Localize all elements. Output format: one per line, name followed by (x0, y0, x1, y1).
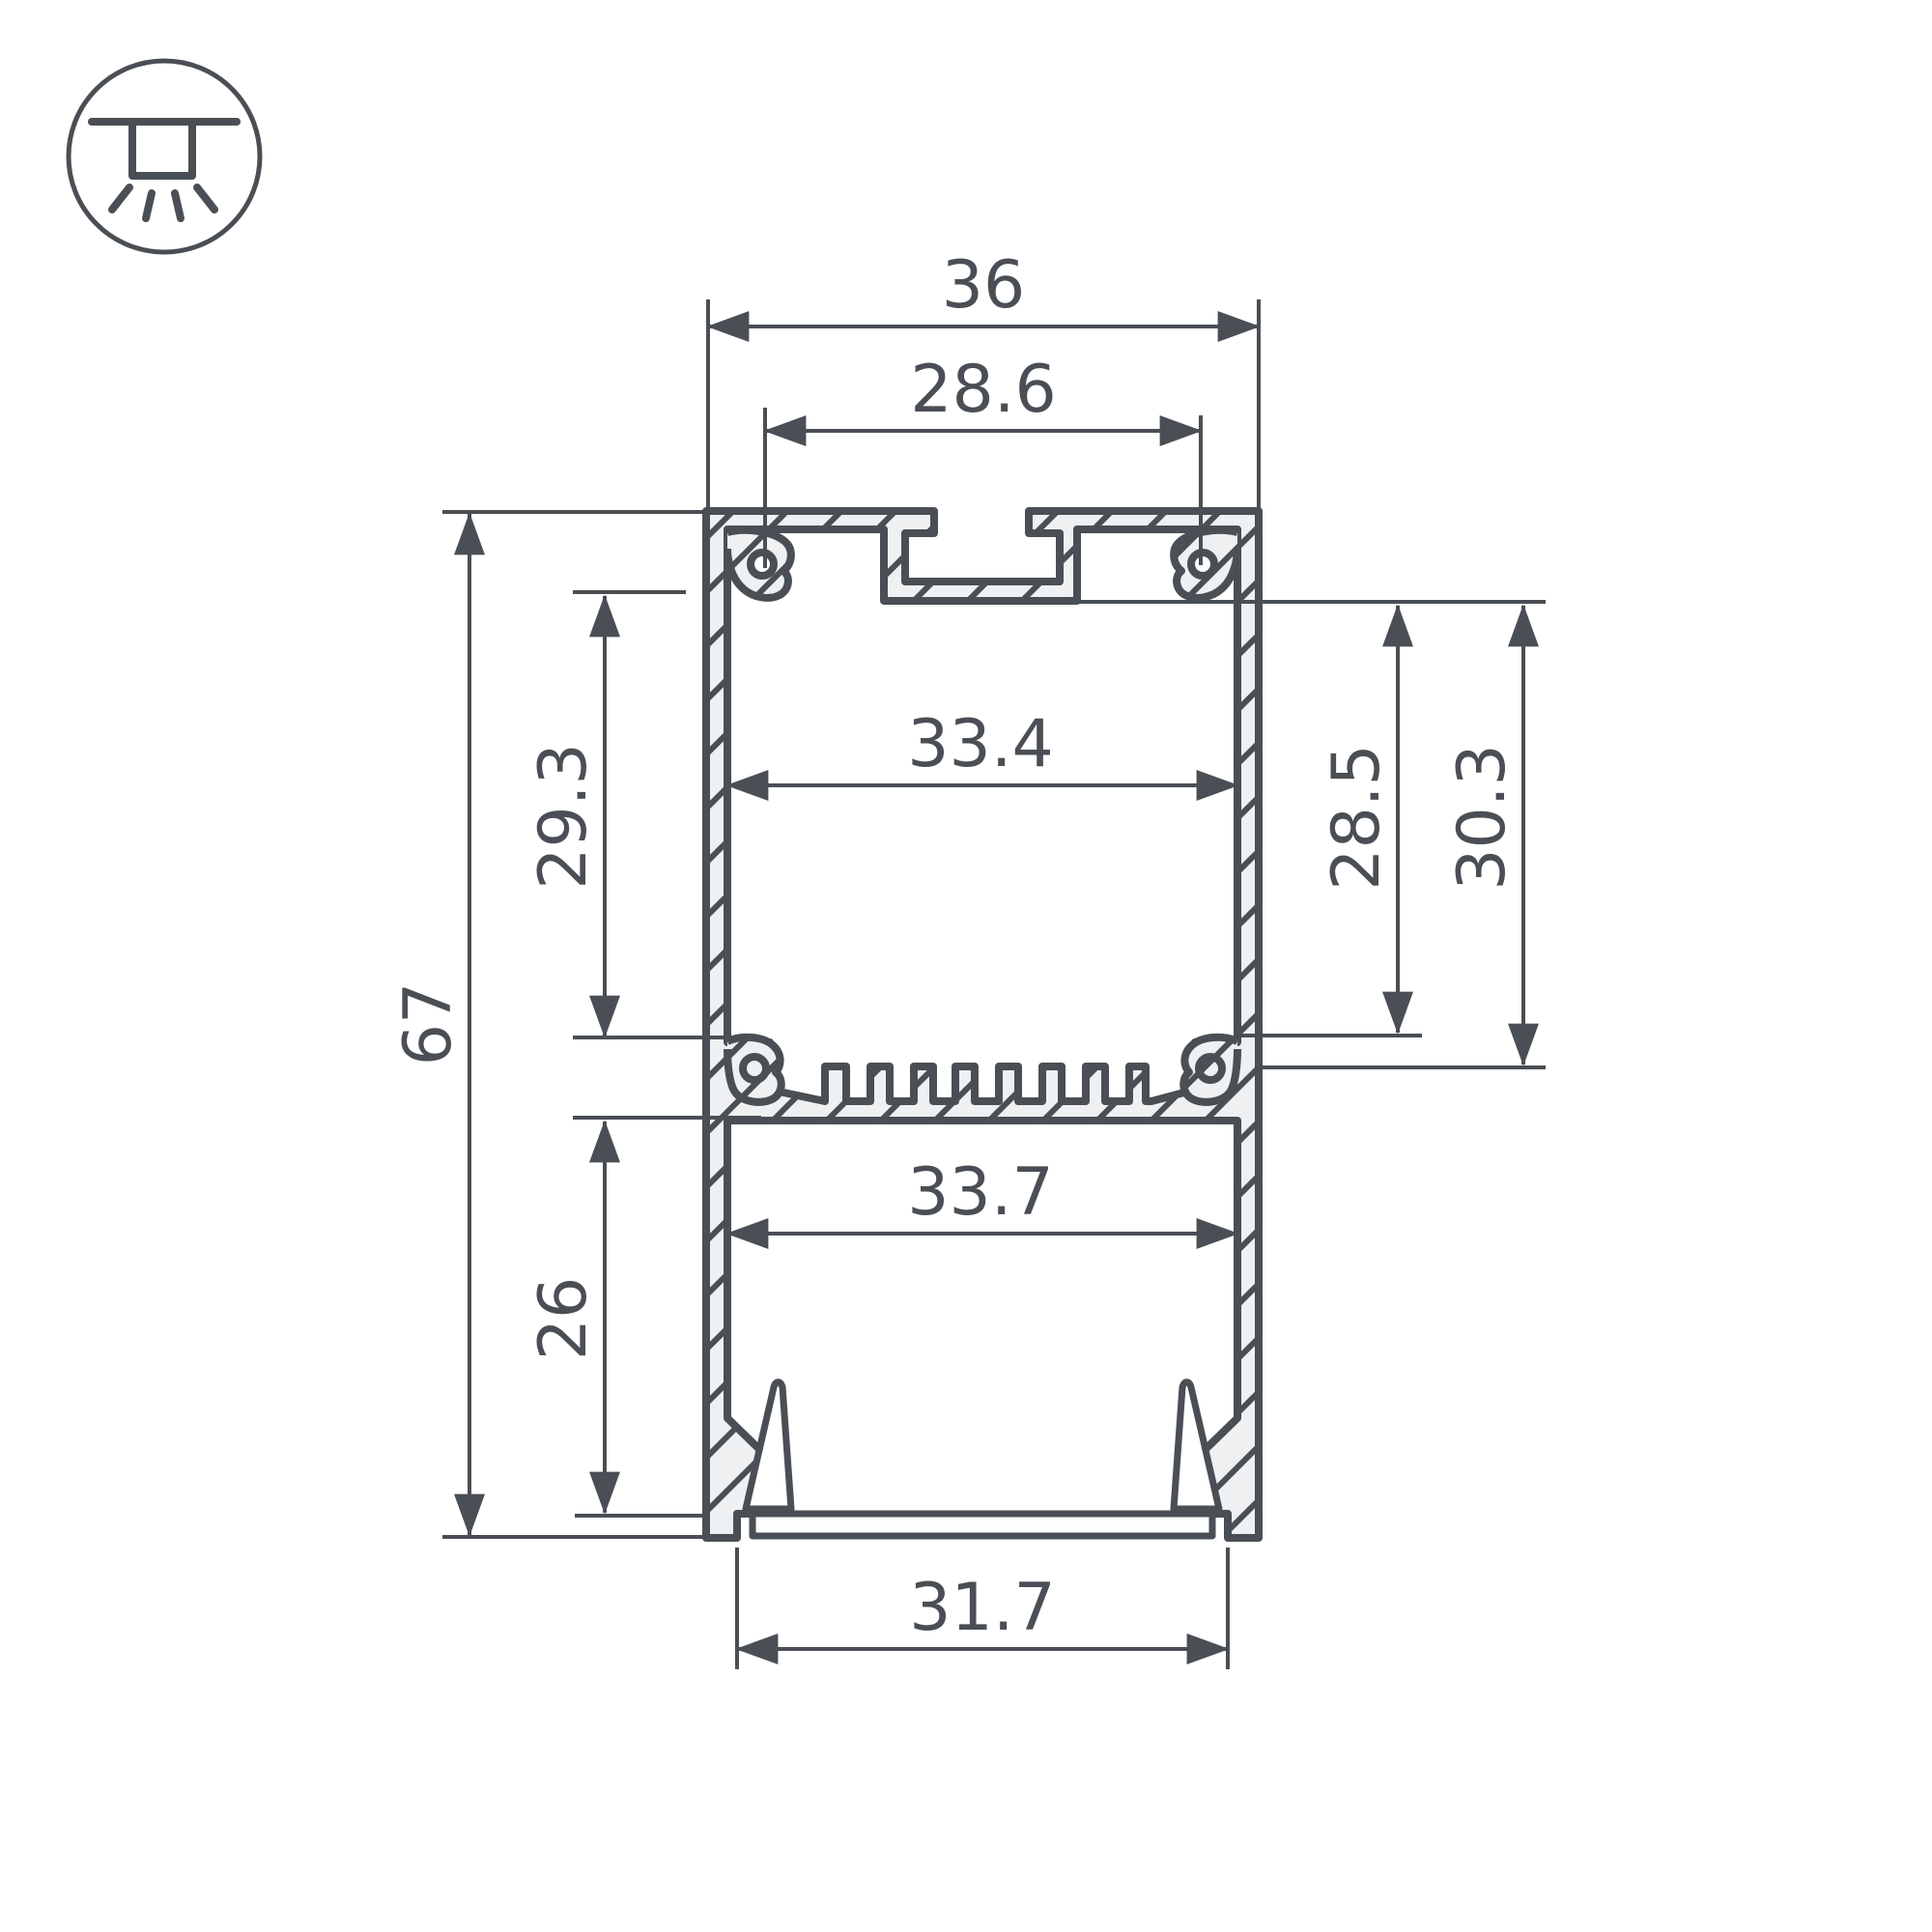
dim-label-depth-to-ledge: 28.5 (1319, 744, 1395, 890)
icon-fixture-box (132, 122, 192, 176)
icon-circle (69, 61, 260, 252)
screw-boss-outlines (727, 530, 1237, 1102)
dim-label-upper-inner-width: 33.4 (907, 706, 1053, 782)
dim-label-depth-to-fins: 30.3 (1444, 744, 1520, 890)
dim-label-overall-width: 36 (942, 247, 1026, 324)
diffuser-plate (753, 1514, 1212, 1536)
section-hatching (706, 511, 1259, 1538)
dim-label-bottom-opening-width: 31.7 (909, 1570, 1055, 1646)
icon-light-rays (112, 187, 214, 218)
dimension-lines (469, 327, 1523, 1649)
ceiling-surface-light-icon (69, 61, 260, 252)
extrusion-body (706, 511, 1259, 1538)
dim-label-lower-chamber-depth: 26 (526, 1277, 602, 1361)
dim-label-mount-slot-centers: 28.6 (910, 352, 1056, 428)
led-profile-cross-section-drawing: 36 28.6 33.4 29.3 67 28.5 30.3 33.7 26 3… (0, 0, 1932, 1932)
extension-lines (442, 299, 1546, 1669)
dimension-annotations: 36 28.6 33.4 29.3 67 28.5 30.3 33.7 26 3… (390, 247, 1546, 1669)
profile-cross-section (706, 511, 1259, 1538)
dim-label-upper-chamber-depth: 29.3 (526, 743, 602, 889)
dim-label-lower-inner-width: 33.7 (907, 1154, 1053, 1231)
technical-drawing-page: 36 28.6 33.4 29.3 67 28.5 30.3 33.7 26 3… (0, 0, 1932, 1932)
dim-label-overall-height: 67 (390, 982, 467, 1066)
dimension-labels: 36 28.6 33.4 29.3 67 28.5 30.3 33.7 26 3… (390, 247, 1520, 1646)
screw-bosses (727, 530, 1237, 1102)
